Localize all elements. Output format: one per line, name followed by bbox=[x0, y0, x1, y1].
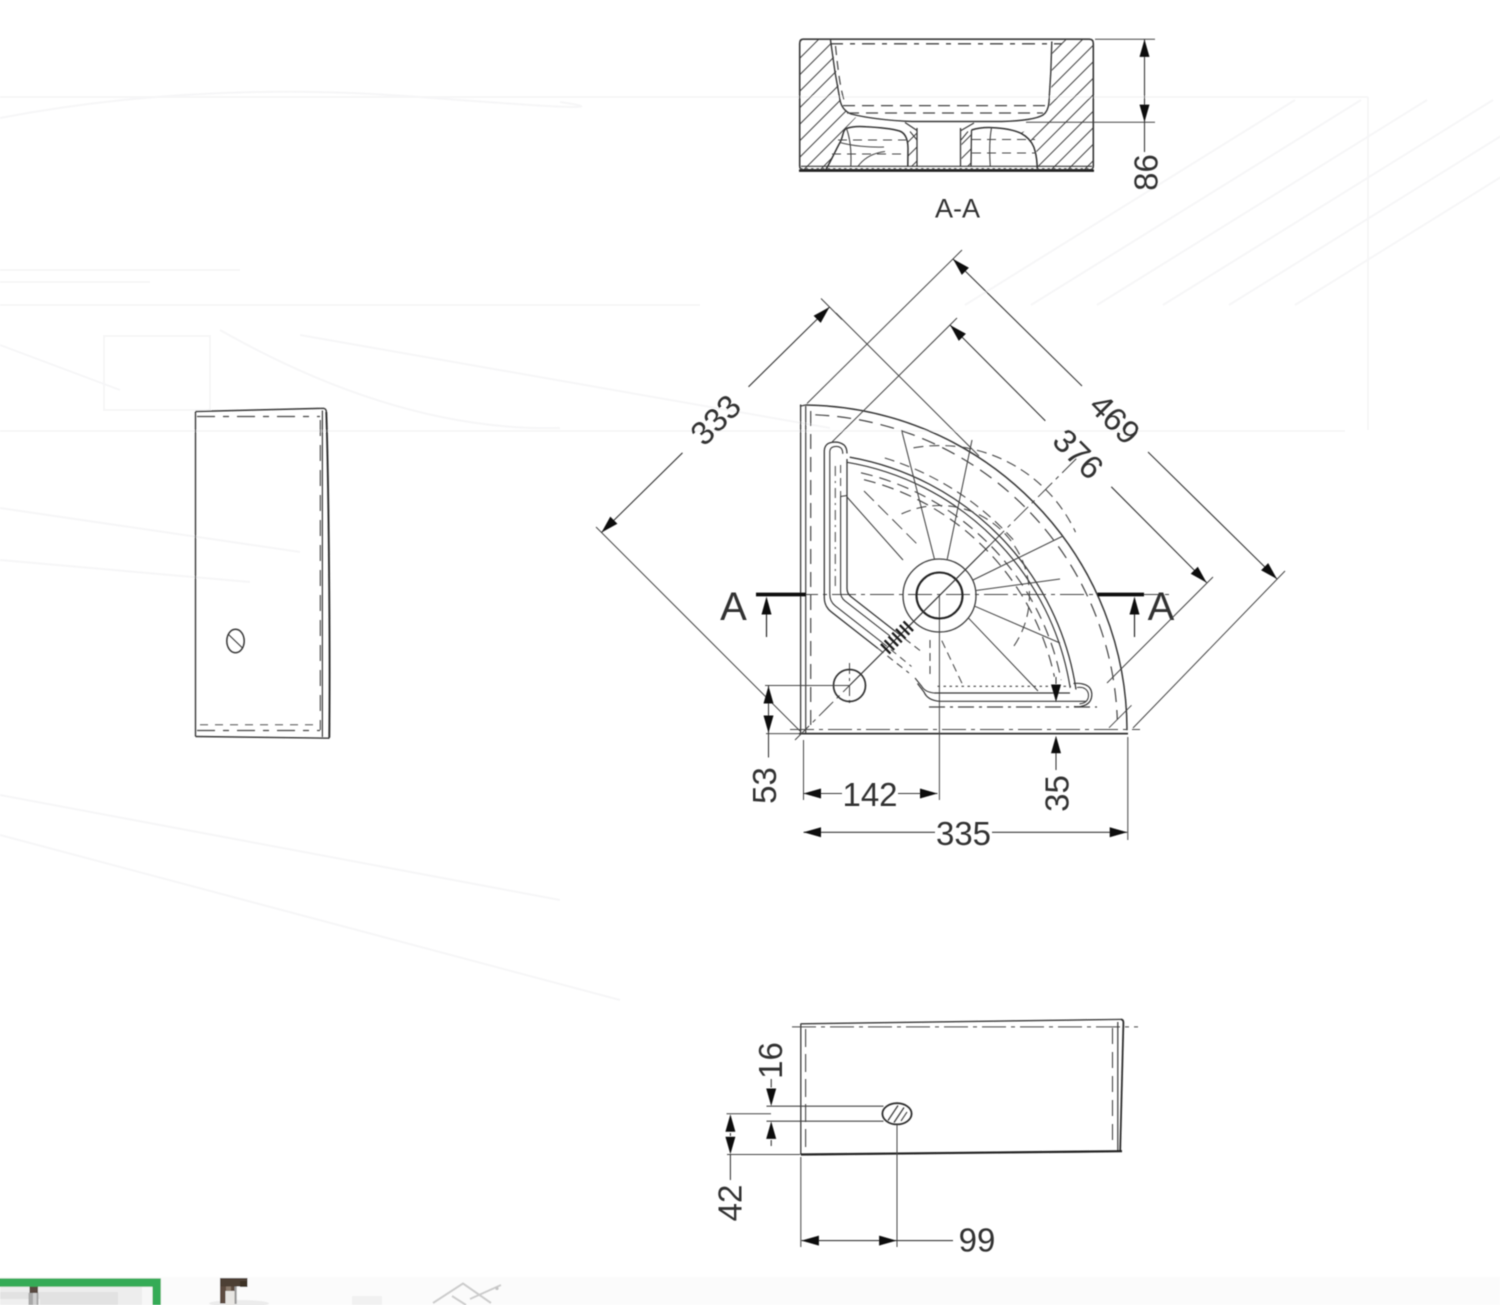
svg-text:A: A bbox=[720, 585, 747, 629]
svg-text:53: 53 bbox=[746, 767, 783, 804]
svg-text:A-A: A-A bbox=[935, 194, 980, 224]
svg-text:99: 99 bbox=[959, 1222, 996, 1259]
svg-text:142: 142 bbox=[842, 776, 897, 813]
svg-text:335: 335 bbox=[936, 815, 991, 852]
svg-text:35: 35 bbox=[1039, 775, 1076, 812]
svg-text:A: A bbox=[1148, 585, 1175, 629]
svg-text:42: 42 bbox=[712, 1185, 749, 1222]
svg-text:86: 86 bbox=[1128, 154, 1165, 191]
svg-text:16: 16 bbox=[752, 1042, 789, 1079]
